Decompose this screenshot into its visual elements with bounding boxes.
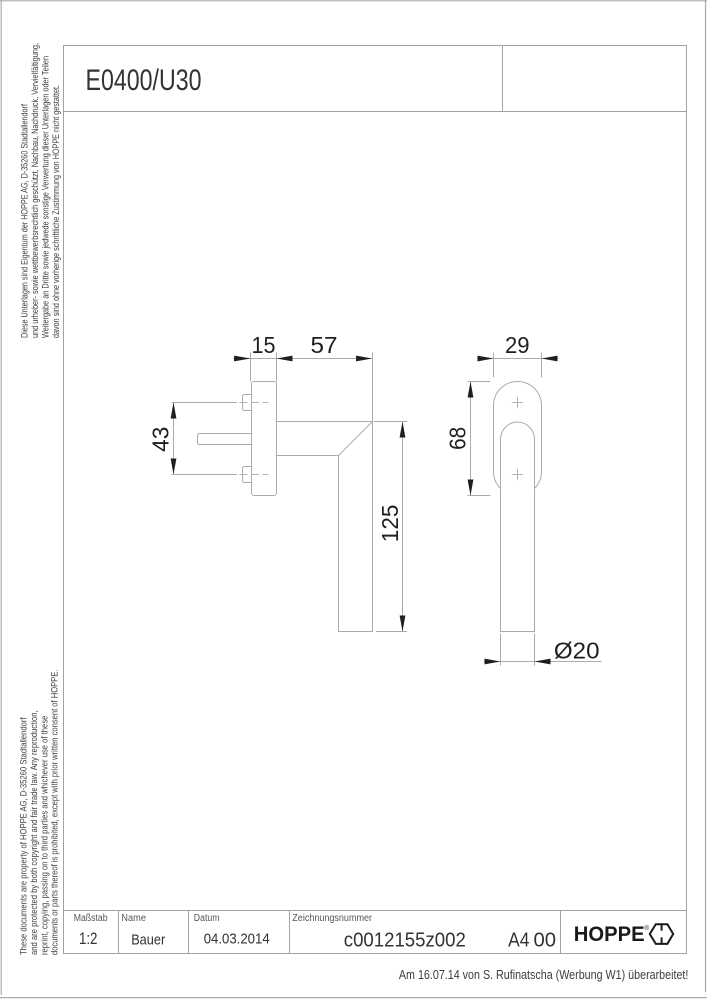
svg-text:Diese Unterlagen sind Eigentum: Diese Unterlagen sind Eigentum der HOPPE… [19,104,29,338]
svg-text:davon sind ohne vorherige schr: davon sind ohne vorherige schriftliche Z… [51,85,61,338]
svg-text:and are protected by both copy: and are protected by both copyright and … [29,710,39,955]
svg-text:Weitergabe an Dritte sowie jed: Weitergabe an Dritte sowie jedwede sonst… [41,56,51,338]
svg-text:Datum: Datum [194,913,220,924]
svg-text:reprint, copying, passing on t: reprint, copying, passing on to third pa… [39,716,49,955]
svg-text:29: 29 [505,332,530,358]
svg-text:43: 43 [147,427,173,452]
svg-text:A4: A4 [508,930,529,952]
svg-text:15: 15 [252,332,276,358]
svg-text:57: 57 [311,332,338,358]
svg-text:04.03.2014: 04.03.2014 [204,931,270,948]
svg-text:1:2: 1:2 [79,930,98,948]
svg-text:Name: Name [121,913,146,924]
svg-text:Am 16.07.14 von S. Rufinatscha: Am 16.07.14 von S. Rufinatscha (Werbung … [399,967,689,982]
svg-text:c0012155z002: c0012155z002 [344,929,466,951]
svg-text:und urheber- sowie wettbewerbs: und urheber- sowie wettbewerbsrechtlich … [30,43,40,338]
svg-text:E0400/U30: E0400/U30 [86,64,202,97]
svg-text:These documents are property o: These documents are property of HOPPE AG… [19,717,29,955]
svg-text:68: 68 [445,427,471,450]
svg-text:Bauer: Bauer [131,933,165,949]
svg-text:125: 125 [377,505,403,543]
svg-text:documents or parts thereof is: documents or parts thereof is prohibited… [50,670,60,955]
svg-text:Zeichnungsnummer: Zeichnungsnummer [292,913,372,924]
svg-text:00: 00 [534,930,557,952]
svg-text:Ø20: Ø20 [554,638,600,664]
svg-text:®: ® [644,924,649,932]
svg-text:Maßstab: Maßstab [74,913,108,924]
svg-text:HOPPE: HOPPE [574,922,645,946]
